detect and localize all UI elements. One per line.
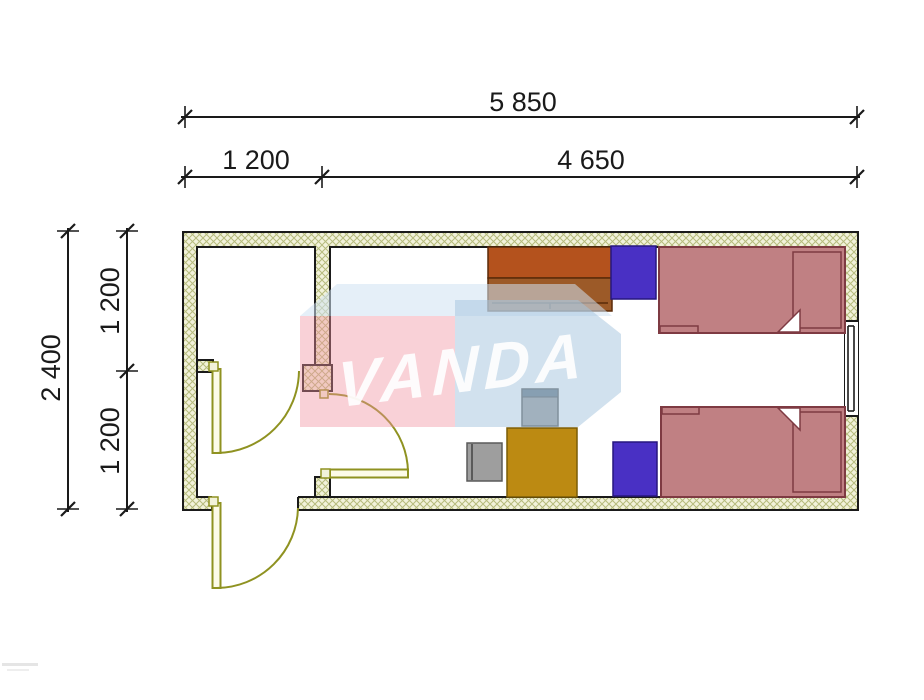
vanda-watermark-logo: VANDA	[300, 284, 621, 427]
desk	[507, 428, 577, 497]
fine-print-mark	[7, 669, 29, 671]
dim-label-height-total: 2 400	[36, 334, 66, 402]
dimension-height-total: 2 400	[36, 224, 79, 516]
dimension-height-split: 1 200 1 200	[95, 224, 138, 516]
nightstand-top	[611, 246, 656, 299]
bed-top	[659, 247, 845, 333]
dimension-width-total: 5 850	[178, 87, 864, 128]
chair-left	[467, 443, 502, 481]
floor-plan-drawing: 5 850 1 200 4 650 2 400	[0, 0, 924, 700]
partition-lower-stub	[315, 477, 330, 497]
fine-print-mark	[2, 663, 38, 666]
dimension-width-split: 1 200 4 650	[178, 145, 864, 188]
dim-label-height-top: 1 200	[95, 267, 125, 335]
dim-label-width-left: 1 200	[222, 145, 290, 175]
dim-label-width-total: 5 850	[489, 87, 557, 117]
nightstand-bottom	[613, 442, 657, 496]
dim-label-height-bottom: 1 200	[95, 407, 125, 475]
bed-bottom	[661, 407, 845, 497]
floor-plan-svg: 5 850 1 200 4 650 2 400	[0, 0, 924, 700]
dim-label-width-right: 4 650	[557, 145, 625, 175]
window	[845, 321, 858, 416]
exterior-door-opening	[212, 496, 298, 511]
